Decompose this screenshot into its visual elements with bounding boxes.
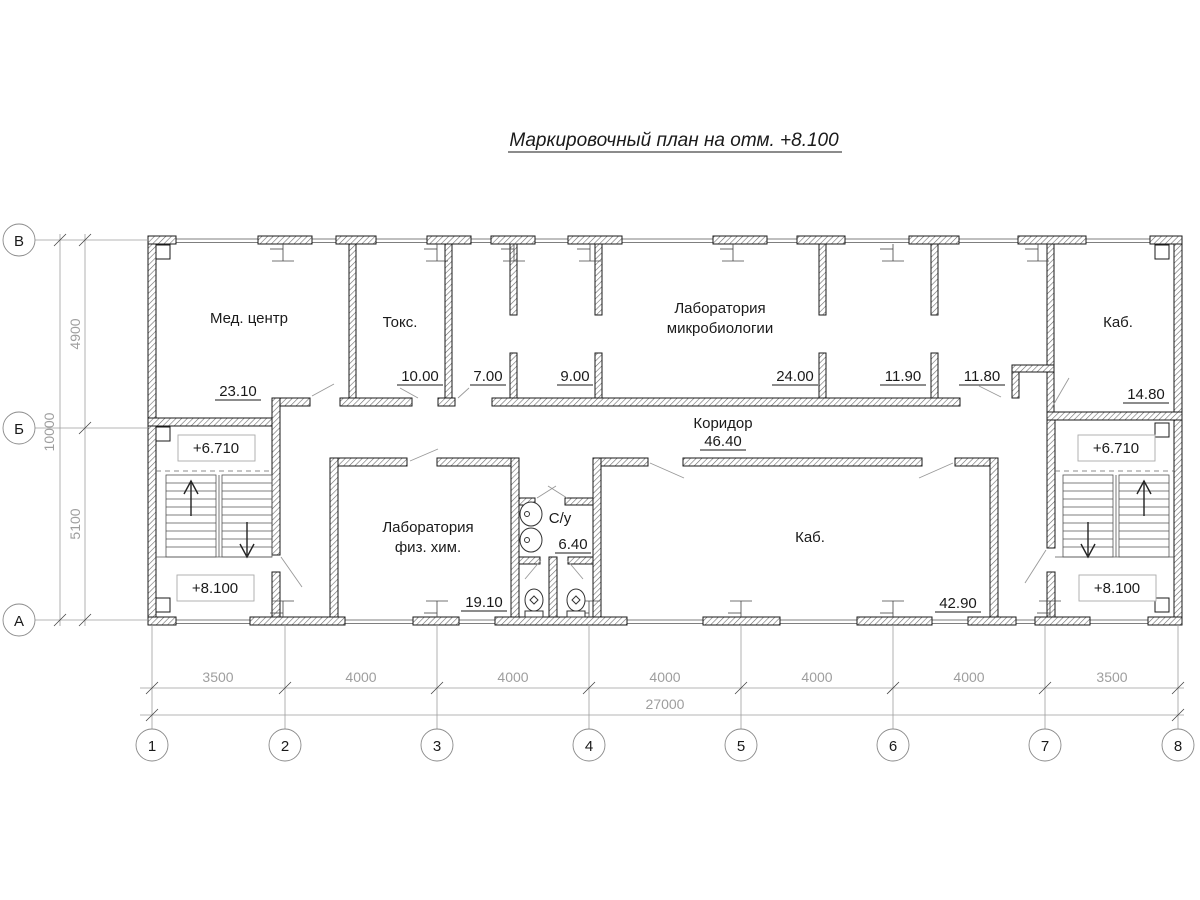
area-corridor: 46.40 bbox=[704, 433, 742, 450]
area-room1180: 11.80 bbox=[964, 368, 1000, 385]
axis-column: 4 bbox=[585, 738, 593, 755]
room-micro-lab-line1: Лаборатория bbox=[674, 300, 765, 317]
exterior-wall-left bbox=[148, 236, 156, 625]
axis-column: 2 bbox=[281, 738, 289, 755]
wall-pier bbox=[148, 617, 176, 625]
drawing-sheet: Маркировочный план на отм. +8.100 bbox=[0, 0, 1200, 900]
window-lines bbox=[148, 239, 1182, 624]
axis-row: В bbox=[14, 233, 24, 250]
area-room9: 9.00 bbox=[560, 368, 589, 385]
wall-pier bbox=[1018, 236, 1086, 244]
dim-segment: 4000 bbox=[345, 669, 376, 685]
axis-column: 5 bbox=[737, 738, 745, 755]
dim-total-bottom: 27000 bbox=[646, 696, 685, 712]
pilaster bbox=[156, 427, 170, 441]
axis-row: А bbox=[14, 613, 24, 630]
perimeter-piers bbox=[148, 236, 1182, 625]
door-leaf-line bbox=[410, 449, 438, 461]
door-leaf-line bbox=[458, 388, 469, 398]
wall-pier bbox=[1035, 617, 1090, 625]
axis-row: Б bbox=[14, 421, 24, 438]
area-phys-lab: 19.10 bbox=[465, 594, 503, 611]
floor-plan-canvas: Маркировочный план на отм. +8.100 bbox=[0, 0, 1200, 900]
room-sanitary: С/у bbox=[549, 510, 572, 527]
pilaster bbox=[1155, 598, 1169, 612]
stairwell-right bbox=[1055, 471, 1174, 557]
door-leaf-line bbox=[919, 463, 953, 478]
door-leaf-line bbox=[548, 486, 567, 498]
door-leaf-line bbox=[1025, 550, 1046, 583]
wall-pier bbox=[413, 617, 459, 625]
dim-segment: 3500 bbox=[202, 669, 233, 685]
axis-column: 6 bbox=[889, 738, 897, 755]
walls bbox=[148, 236, 1182, 625]
wall-pier bbox=[258, 236, 312, 244]
pilaster bbox=[1155, 423, 1169, 437]
wall-pier bbox=[495, 617, 627, 625]
room-corridor: Коридор bbox=[693, 415, 752, 432]
area-med-center: 23.10 bbox=[219, 383, 257, 400]
room-med-center: Мед. центр bbox=[210, 310, 288, 327]
door-leaf-line bbox=[400, 388, 418, 398]
room-phys-lab-line1: Лаборатория bbox=[382, 519, 473, 536]
dim-left-upper: 4900 bbox=[67, 318, 83, 349]
door-leaf-line bbox=[537, 486, 556, 498]
wall-pier bbox=[909, 236, 959, 244]
wall-pier bbox=[1148, 617, 1182, 625]
area-toks: 10.00 bbox=[401, 368, 439, 385]
room-micro-lab-line2: микробиологии bbox=[667, 320, 773, 337]
drawing-title: Маркировочный план на отм. +8.100 bbox=[509, 130, 839, 151]
area-room1190: 11.90 bbox=[885, 368, 921, 385]
room-phys-lab-line2: физ. хим. bbox=[395, 539, 461, 556]
elevation-upper-left: +6.710 bbox=[193, 440, 239, 457]
door-leaf-line bbox=[979, 386, 1001, 397]
axis-column: 3 bbox=[433, 738, 441, 755]
area-kab-main: 42.90 bbox=[939, 595, 977, 612]
door-leaf-line bbox=[281, 557, 302, 587]
room-toks: Токс. bbox=[383, 314, 418, 331]
dim-segment: 4000 bbox=[801, 669, 832, 685]
wall-pier bbox=[797, 236, 845, 244]
room-kab-top: Каб. bbox=[1103, 314, 1133, 331]
elevation-lower-left: +8.100 bbox=[192, 580, 238, 597]
wall-pier bbox=[568, 236, 622, 244]
elevation-upper-right: +6.710 bbox=[1093, 440, 1139, 457]
area-sanitary: 6.40 bbox=[558, 536, 587, 553]
pilaster bbox=[156, 245, 170, 259]
area-kab-top: 14.80 bbox=[1127, 386, 1165, 403]
elevation-lower-right: +8.100 bbox=[1094, 580, 1140, 597]
stairwell-left bbox=[156, 471, 272, 557]
dim-total-left: 10000 bbox=[41, 412, 57, 451]
door-leaf-line bbox=[312, 384, 334, 396]
wall-pier bbox=[250, 617, 345, 625]
door-leaf-line bbox=[650, 463, 684, 478]
wall-pier bbox=[713, 236, 767, 244]
wall-pier bbox=[703, 617, 780, 625]
wall-pier bbox=[968, 617, 1016, 625]
axis-column: 8 bbox=[1174, 738, 1182, 755]
room-kab-main: Каб. bbox=[795, 529, 825, 546]
dim-segment: 4000 bbox=[649, 669, 680, 685]
wall-pier bbox=[857, 617, 932, 625]
wall-pier bbox=[491, 236, 535, 244]
sink bbox=[520, 502, 542, 526]
dimension-lines bbox=[60, 234, 1184, 715]
wall-pier bbox=[336, 236, 376, 244]
dim-segment: 3500 bbox=[1096, 669, 1127, 685]
dim-segment: 4000 bbox=[497, 669, 528, 685]
axis-extension-lines bbox=[35, 234, 1184, 729]
wall-pier bbox=[1150, 236, 1182, 244]
dim-segment: 4000 bbox=[953, 669, 984, 685]
area-micro-lab: 24.00 bbox=[776, 368, 814, 385]
exterior-wall-right bbox=[1174, 236, 1182, 625]
pilaster bbox=[1155, 245, 1169, 259]
elevation-marks: +6.710 +8.100 +6.710 +8.100 bbox=[177, 435, 1156, 601]
wall-pier bbox=[427, 236, 471, 244]
axis-column: 1 bbox=[148, 738, 156, 755]
area-room7: 7.00 bbox=[473, 368, 502, 385]
wall-pier bbox=[148, 236, 176, 244]
dim-left-lower: 5100 bbox=[67, 508, 83, 539]
axis-column: 7 bbox=[1041, 738, 1049, 755]
sink bbox=[520, 528, 542, 552]
pilaster bbox=[156, 598, 170, 612]
